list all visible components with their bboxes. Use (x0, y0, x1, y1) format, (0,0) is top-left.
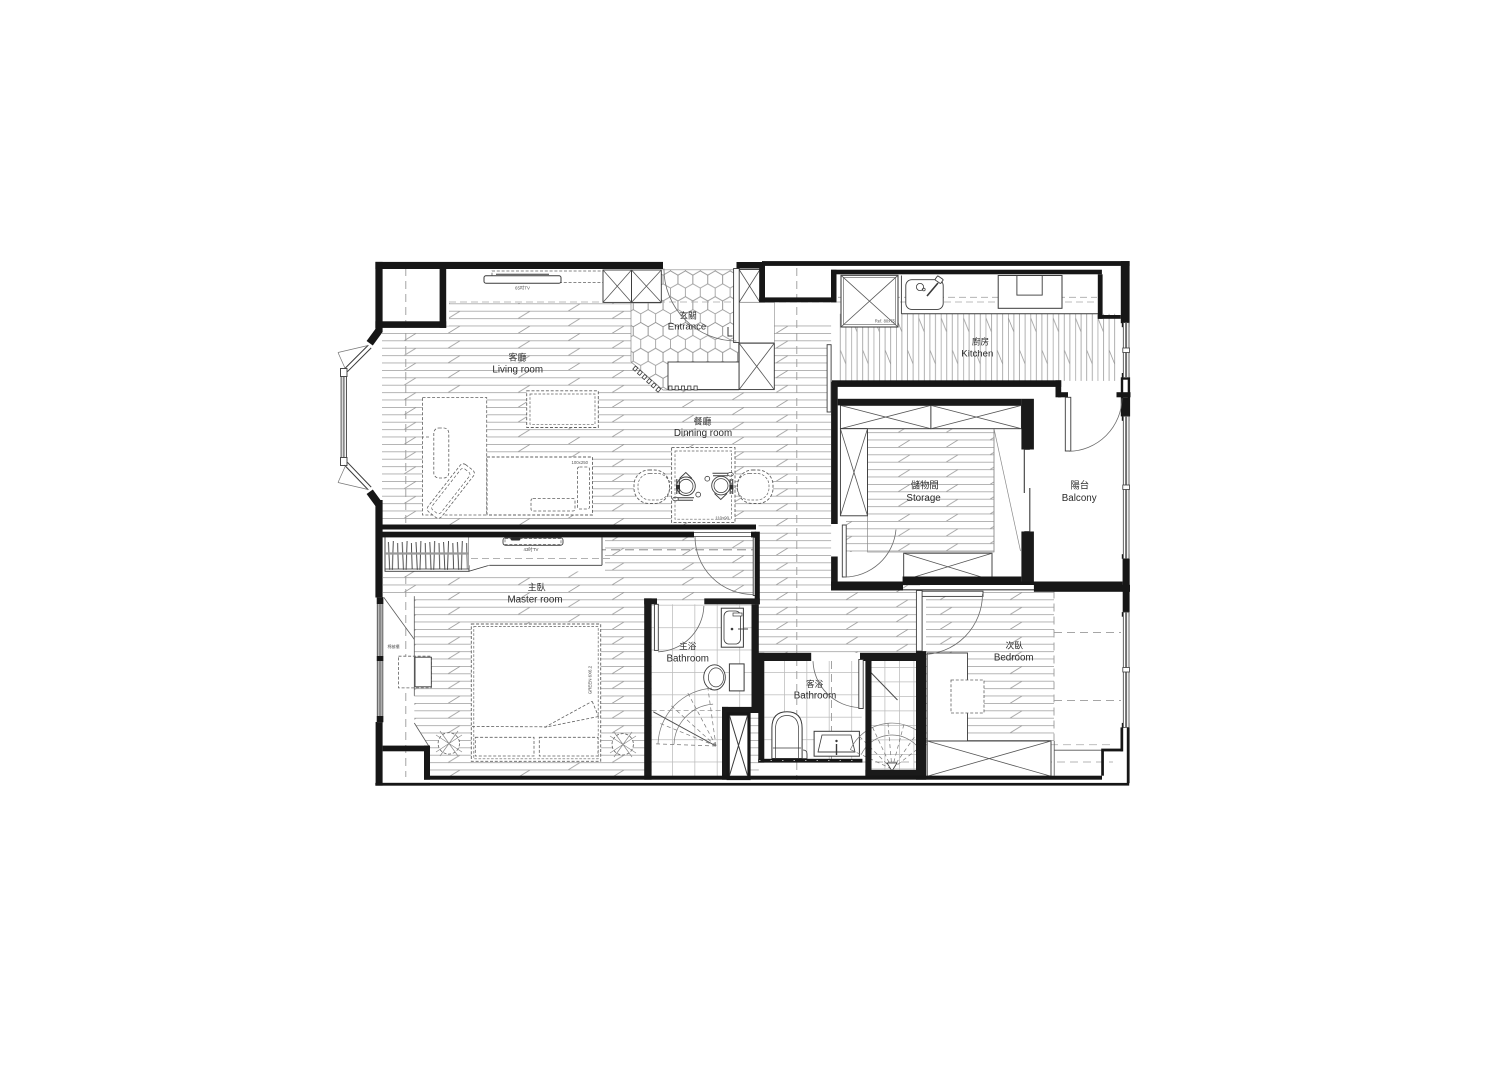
svg-text:Entrance: Entrance (668, 322, 706, 333)
svg-text:Ref. 80x75: Ref. 80x75 (875, 319, 896, 324)
svg-text:儲物間: 儲物間 (911, 480, 939, 491)
svg-text:客廳: 客廳 (508, 352, 526, 363)
svg-text:主浴: 主浴 (679, 640, 697, 651)
svg-text:100x250: 100x250 (572, 460, 589, 465)
svg-text:餐廳: 餐廳 (693, 416, 711, 427)
svg-text:Bathroom: Bathroom (666, 654, 708, 665)
svg-text:玄關: 玄關 (679, 310, 697, 321)
svg-text:Living room: Living room (492, 365, 543, 376)
svg-text:次臥: 次臥 (1005, 639, 1023, 650)
svg-text:主臥: 主臥 (528, 582, 546, 593)
svg-text:Balcony: Balcony (1062, 493, 1097, 504)
svg-text:Kitchen: Kitchen (961, 349, 993, 360)
svg-text:陽台: 陽台 (1070, 480, 1089, 491)
svg-text:43吋TV: 43吋TV (524, 546, 539, 552)
svg-text:GREEN 6X6.2: GREEN 6X6.2 (588, 665, 593, 694)
svg-text:Dinning room: Dinning room (674, 428, 732, 439)
svg-text:棉被櫃: 棉被櫃 (388, 643, 400, 649)
svg-text:Master room: Master room (508, 594, 563, 605)
svg-text:110x90: 110x90 (715, 516, 729, 521)
svg-text:廚房: 廚房 (972, 336, 989, 347)
svg-text:客浴: 客浴 (806, 678, 824, 689)
svg-text:Storage: Storage (906, 493, 941, 504)
svg-text:65吋TV: 65吋TV (515, 285, 530, 291)
svg-text:Bedroom: Bedroom (994, 653, 1034, 664)
